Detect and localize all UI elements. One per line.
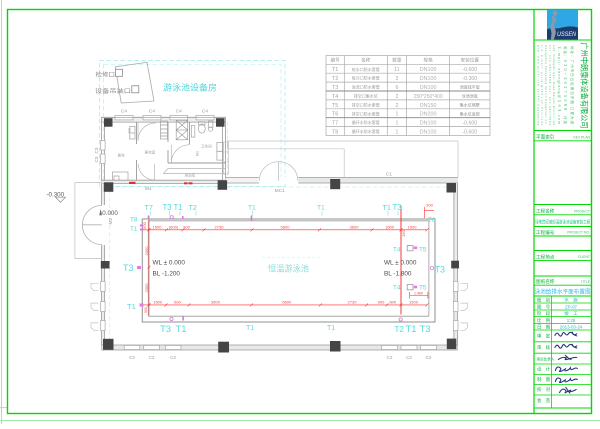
svg-text:T5: T5 [419, 247, 427, 254]
svg-text:排空口防水套管: 排空口防水套管 [352, 101, 380, 107]
svg-text:数量: 数量 [392, 57, 402, 64]
svg-text:5600: 5600 [281, 224, 291, 229]
svg-text:2013-03-24: 2013-03-24 [560, 324, 583, 329]
svg-text:250*250*400: 250*250*400 [414, 94, 443, 100]
svg-text:2: 2 [395, 103, 398, 109]
svg-text:C2: C2 [170, 355, 176, 360]
svg-text:T7: T7 [332, 121, 338, 127]
svg-text:检修口: 检修口 [96, 71, 116, 79]
svg-text:池底找平层: 池底找平层 [460, 84, 480, 90]
svg-text:电话：０２０－３６２７５９８８ 传真: 电话：０２０－３６２７５９８８ 传真 [563, 46, 568, 125]
svg-text:6: 6 [395, 85, 398, 91]
svg-text:比 例: 比 例 [537, 317, 551, 324]
svg-text:C2: C2 [426, 355, 432, 360]
svg-text:2000: 2000 [144, 283, 149, 293]
svg-text:T8: T8 [332, 130, 338, 136]
svg-text:T8: T8 [130, 217, 138, 224]
svg-text:C3: C3 [94, 156, 99, 162]
svg-text:2: 2 [395, 94, 398, 100]
svg-text:排空口防水套管: 排空口防水套管 [352, 110, 380, 116]
svg-text:KEY PLAN: KEY PLAN [573, 135, 590, 139]
svg-text:T1: T1 [246, 325, 254, 332]
svg-text:T3: T3 [393, 203, 402, 212]
svg-text:T3: T3 [163, 203, 172, 212]
svg-text:更衣: 更衣 [118, 153, 126, 158]
svg-text:吸污口防水套管: 吸污口防水套管 [352, 75, 380, 81]
svg-text:T1: T1 [130, 226, 138, 233]
svg-text:600: 600 [174, 299, 181, 304]
svg-text:11: 11 [394, 67, 399, 73]
svg-text:T5: T5 [419, 285, 427, 292]
svg-text:广州中朗康体设备有限公司: 广州中朗康体设备有限公司 [580, 43, 590, 129]
svg-text:T4: T4 [393, 285, 401, 292]
svg-text:M1: M1 [196, 151, 200, 156]
svg-text:工程编号: 工程编号 [536, 229, 555, 236]
svg-text:T3: T3 [420, 324, 431, 335]
svg-text:1500: 1500 [153, 299, 163, 304]
svg-text:(600: (600 [386, 224, 395, 229]
svg-text:T1: T1 [383, 203, 391, 212]
svg-text:循环水防水套管: 循环水防水套管 [352, 119, 380, 125]
svg-text:1.460: 1.460 [414, 291, 423, 295]
svg-text:900: 900 [183, 224, 190, 229]
svg-text:Guangzhou Zhonglang Sports Equ: Guangzhou Zhonglang Sports Equipment Co. [544, 45, 547, 125]
svg-text:项目负责人: 项目负责人 [537, 356, 555, 361]
svg-text:工程名称: 工程名称 [536, 208, 555, 215]
svg-text:1:25: 1:25 [567, 318, 576, 323]
svg-text:T6: T6 [332, 112, 338, 118]
svg-text:BL -1.200: BL -1.200 [153, 271, 181, 278]
svg-text:C4: C4 [202, 108, 208, 114]
svg-text:地址：广州市白云区黄石东路 江夏大道: 地址：广州市白云区黄石东路 江夏大道 [570, 46, 575, 125]
svg-text:T3: T3 [123, 263, 134, 273]
svg-text:集水坑底部: 集水坑底部 [460, 110, 480, 116]
svg-text:C2: C2 [149, 355, 155, 360]
svg-text:T1: T1 [332, 67, 338, 73]
svg-text:恒温游泳池: 恒温游泳池 [268, 263, 309, 274]
svg-text:T3: T3 [160, 324, 171, 335]
svg-text:-0.600: -0.600 [462, 67, 477, 73]
svg-text:设备吊装口: 设备吊装口 [95, 87, 131, 95]
svg-text:淋浴房: 淋浴房 [185, 172, 196, 177]
svg-text:CLIENT: CLIENT [578, 255, 590, 259]
svg-text:T1: T1 [248, 205, 256, 212]
svg-text:WL ± 0.000: WL ± 0.000 [384, 260, 417, 267]
svg-text:平面索引: 平面索引 [536, 134, 554, 141]
svg-text:C3: C3 [94, 147, 99, 153]
svg-text:T4: T4 [332, 94, 338, 100]
svg-text:T6: T6 [428, 217, 436, 224]
svg-text:5600: 5600 [282, 299, 292, 304]
svg-text:审 定: 审 定 [537, 333, 551, 340]
svg-text:规格: 规格 [423, 57, 433, 64]
svg-text:T1: T1 [127, 302, 136, 311]
svg-text:Ｅ-mail：zhonglang＠１６３.com: Ｅ-mail：zhonglang＠１６３.com [557, 46, 562, 124]
svg-text:T2: T2 [395, 325, 405, 334]
svg-text:C1: C1 [386, 171, 392, 177]
svg-text:C4: C4 [121, 108, 127, 114]
svg-text:校 对: 校 对 [537, 386, 551, 393]
svg-text:T4: T4 [393, 247, 401, 254]
svg-text:循环水防水套管: 循环水防水套管 [352, 128, 380, 134]
svg-text:排空口集水坑: 排空口集水坑 [354, 93, 378, 99]
svg-text:C2: C2 [406, 355, 412, 360]
svg-text:2: 2 [395, 76, 398, 82]
svg-text:150: 150 [401, 229, 406, 236]
svg-text:-0.300: -0.300 [462, 76, 477, 82]
svg-text:PROJECT: PROJECT [574, 209, 590, 213]
svg-text:制 图: 制 图 [537, 376, 551, 383]
svg-text:M2: M2 [108, 218, 114, 225]
svg-text:1: 1 [395, 130, 398, 136]
svg-text:给水口防水套管: 给水口防水套管 [352, 66, 380, 72]
svg-text:竣 工: 竣 工 [564, 310, 578, 317]
svg-text:DN200: DN200 [420, 112, 437, 118]
svg-text:更衣室: 更衣室 [145, 149, 156, 154]
svg-text:PROJECT NO.: PROJECT NO. [567, 231, 590, 235]
svg-text:-0.600: -0.600 [462, 130, 477, 136]
svg-text:500: 500 [144, 307, 148, 313]
svg-text:溢流口防水套管: 溢流口防水套管 [352, 84, 380, 90]
svg-text:名称: 名称 [361, 57, 371, 64]
svg-text:泳池给排水平面布置图: 泳池给排水平面布置图 [535, 288, 591, 296]
svg-text:T3: T3 [435, 265, 446, 275]
svg-text:T7: T7 [145, 203, 153, 212]
svg-text:阶 段: 阶 段 [537, 310, 551, 317]
svg-text:1: 1 [395, 112, 398, 118]
svg-text:DN100: DN100 [420, 130, 437, 136]
svg-text:游泳池设备房: 游泳池设备房 [163, 82, 217, 93]
svg-text:DN100: DN100 [420, 121, 437, 127]
svg-text:T2: T2 [189, 203, 197, 212]
svg-text:编号: 编号 [330, 57, 340, 64]
svg-text:900: 900 [378, 299, 385, 304]
svg-text:T1: T1 [327, 325, 335, 332]
svg-text:Add: Huangshi East Road Baiyun: Add: Huangshi East Road Baiyun District … [552, 45, 555, 125]
svg-text:T3: T3 [332, 85, 338, 91]
svg-text:泳池池底: 泳池池底 [462, 93, 478, 99]
svg-text:图 别: 图 别 [537, 296, 550, 303]
svg-text:Tel: 020-36275988 Fax: 020-36: Tel: 020-36275988 Fax: 020-36275989 [548, 45, 551, 126]
svg-text:C2: C2 [387, 355, 393, 360]
svg-text:DN100: DN100 [420, 85, 437, 91]
svg-text:安装位置: 安装位置 [461, 57, 480, 64]
svg-text:会 签: 会 签 [537, 397, 551, 404]
svg-text:水 施: 水 施 [564, 296, 578, 303]
svg-text:C2: C2 [129, 355, 135, 360]
svg-text:(600): (600) [169, 224, 179, 229]
svg-text:T1: T1 [174, 203, 183, 212]
svg-text:集水坑侧壁: 集水坑侧壁 [460, 101, 480, 107]
svg-text:600: 600 [389, 299, 396, 304]
svg-text:C4: C4 [149, 108, 155, 114]
svg-text:绿地世纪城恒温游泳池设备安装工程: 绿地世纪城恒温游泳池设备安装工程 [535, 218, 590, 225]
svg-text:T1: T1 [176, 324, 187, 335]
svg-text:T1: T1 [317, 205, 325, 212]
svg-text:2730: 2730 [215, 224, 225, 229]
svg-text:设 计: 设 计 [537, 366, 551, 373]
svg-text:3600: 3600 [350, 224, 360, 229]
svg-text:USSEN: USSEN [557, 31, 576, 38]
svg-text:BL -1.800: BL -1.800 [384, 271, 412, 278]
svg-text:3600: 3600 [211, 299, 221, 304]
svg-text:1: 1 [395, 121, 398, 127]
svg-text:MC1: MC1 [275, 188, 285, 194]
svg-text:DN100: DN100 [420, 76, 437, 82]
svg-text:200: 200 [426, 203, 433, 208]
svg-text:审 核: 审 核 [537, 344, 551, 351]
svg-text:DN100: DN100 [420, 67, 437, 73]
svg-text:1500: 1500 [153, 224, 163, 229]
svg-text:T2: T2 [332, 76, 338, 82]
svg-text:2000: 2000 [144, 246, 149, 256]
svg-text:M1: M1 [145, 186, 152, 192]
svg-text:卫生间: 卫生间 [201, 144, 212, 149]
svg-text:0.000: 0.000 [102, 210, 118, 217]
svg-text:1500: 1500 [408, 224, 418, 229]
svg-text:Web: www.gzzlkt.com 510440 G: Web: www.gzzlkt.com 510440 Guangdong [537, 45, 540, 126]
svg-text:2730: 2730 [348, 299, 358, 304]
svg-text:工程地点: 工程地点 [536, 253, 555, 260]
svg-text:DN150: DN150 [420, 103, 437, 109]
svg-text:1500: 1500 [409, 299, 419, 304]
svg-text:-0.600: -0.600 [462, 121, 477, 127]
svg-text:TITLE: TITLE [581, 280, 591, 284]
svg-text:M2: M2 [128, 128, 132, 133]
svg-text:图纸名称: 图纸名称 [536, 278, 555, 285]
svg-text:C4: C4 [176, 108, 182, 114]
svg-text:WL ± 0.000: WL ± 0.000 [153, 260, 186, 267]
svg-text:ZP-07: ZP-07 [565, 304, 578, 309]
svg-text:T5: T5 [332, 103, 338, 109]
svg-text:T1: T1 [406, 324, 417, 335]
